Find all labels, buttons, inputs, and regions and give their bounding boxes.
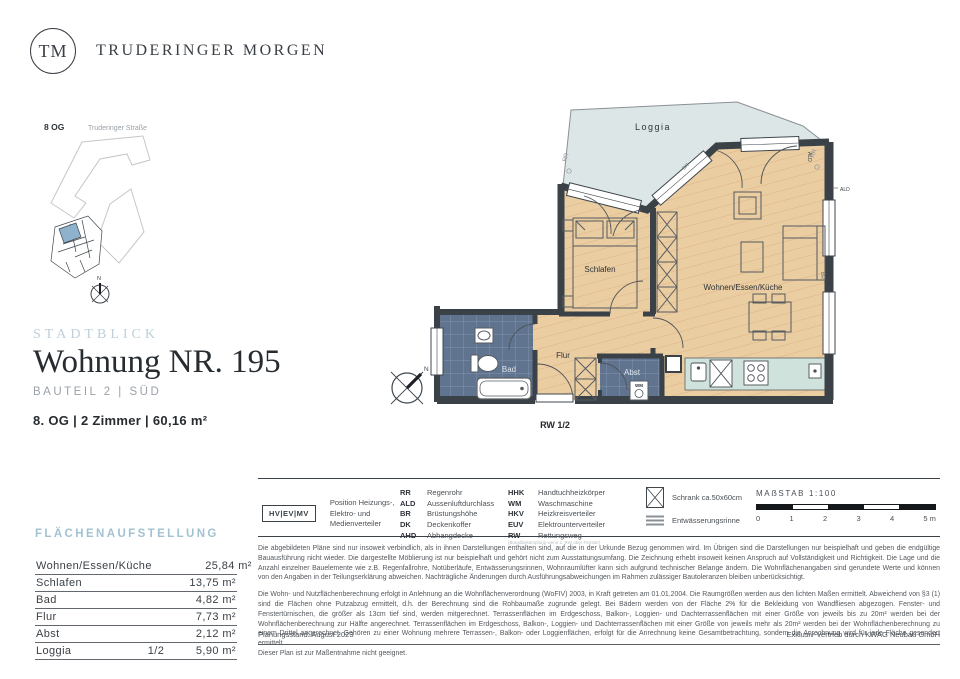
dishwasher-icon [710, 360, 732, 387]
scale-legend: MAẞSTAB 1:100 012345 m [756, 489, 936, 523]
table-row: Wohnen/Essen/Küche 25,84 m² [35, 558, 237, 575]
row-value: 13,75 m² [176, 577, 236, 589]
row-label: Flur [36, 611, 136, 623]
drainage-icon [646, 515, 664, 526]
brand-wordmark: TRUDERINGER MORGEN [96, 42, 327, 60]
toilet-icon [471, 355, 498, 372]
area-table-heading: FLÄCHENAUFSTELLUNG [35, 528, 237, 540]
page-footer: Planungsstand: August 2023 Exklusiv-Vert… [258, 630, 940, 645]
room-label-bad: Bad [502, 365, 516, 374]
room-label-flur: Flur [556, 351, 570, 360]
sink-icon [691, 363, 706, 381]
row-label: Wohnen/Essen/Küche [36, 560, 152, 572]
hv-box-icon: HV|EV|MV [262, 505, 316, 522]
disclaimer-note: Dieser Plan ist zur Maßentnahme nicht ge… [258, 649, 940, 659]
legend-entry: WMWaschmaschine [508, 499, 605, 510]
apartment-details: 8. OG | 2 Zimmer | 60,16 m² [33, 413, 281, 428]
distribution-credit: Exklusiv-Vertrieb durch KWAG Neubau GmbH [786, 630, 940, 639]
svg-text:WM: WM [635, 383, 643, 388]
row-label: Loggia [36, 645, 136, 657]
legend-entry: Entwässerungsrinne [646, 515, 742, 526]
brand-logo: TM TRUDERINGER MORGEN [30, 28, 327, 74]
row-label: Abst [36, 628, 136, 640]
site-map-street-label: Truderinger Straße [88, 125, 147, 132]
area-table: FLÄCHENAUFSTELLUNG Wohnen/Essen/Küche 25… [35, 528, 237, 660]
row-value: 7,73 m² [176, 611, 236, 623]
br-label: BR [819, 272, 825, 279]
row-value: 25,84 m² [192, 560, 252, 572]
svg-text:N: N [97, 276, 101, 282]
row-label: Schlafen [36, 577, 136, 589]
legend-entry: BRBrüstungshöhe [400, 509, 494, 520]
row-factor: 1/2 [136, 645, 176, 657]
legend-entry: EUVElektrounterverteiler [508, 520, 605, 531]
abbreviation-column-2: HHKHandtuchheizkörper WMWaschmaschine HK… [508, 488, 605, 545]
entrance-door-leaf [536, 394, 573, 402]
site-map-floor-label: 8 OG [44, 122, 65, 132]
cooktop-icon [744, 361, 768, 385]
hv-description: Position Heizungs-, Elektro- und Medienv… [330, 498, 408, 530]
compass-icon: N [391, 366, 429, 404]
room-label-wohnen: Wohnen/Essen/Küche [703, 283, 783, 292]
hv-legend: HV|EV|MV Position Heizungs-, Elektro- un… [262, 498, 408, 530]
disclaimer-paragraph: Die abgebildeten Pläne sind nur insoweit… [258, 544, 940, 583]
brand-monogram-icon: TM [30, 28, 76, 74]
bathtub-icon [477, 378, 531, 399]
legend-entry: Schrank ca.50x60cm [646, 487, 742, 508]
schrank-icon [646, 487, 664, 508]
symbol-label: Entwässerungsrinne [672, 516, 740, 525]
svg-text:N: N [424, 366, 429, 373]
table-row: Schlafen 13,75 m² [35, 575, 237, 592]
floor-plan-drawing: WM Loggia Schlafen Wohnen/Essen/Küche Fl… [385, 100, 870, 455]
scale-label: MAẞSTAB 1:100 [756, 489, 936, 498]
abbreviation-column-1: RRRegenrohr ALDAussenluftdurchlass BRBrü… [400, 488, 494, 541]
room-label-loggia: Loggia [635, 122, 671, 132]
planning-status: Planungsstand: August 2023 [258, 630, 354, 639]
room-label-schlafen: Schlafen [584, 265, 615, 274]
project-name: STADTBLICK [33, 327, 281, 343]
row-value: 2,12 m² [176, 628, 236, 640]
outlet-box [809, 364, 821, 378]
escape-route-label: RW 1/2 [540, 420, 570, 430]
legend-entry: ALDAussenluftdurchlass [400, 499, 494, 510]
shaft-box [666, 356, 681, 372]
table-row: Loggia 1/2 5,90 m² [35, 643, 237, 660]
row-value: 4,82 m² [176, 594, 236, 606]
scale-bar [756, 504, 936, 510]
ald-label: ALD [840, 187, 850, 193]
site-location-map: 8 OG Truderinger Straße N [30, 112, 230, 315]
unit-cluster [51, 216, 102, 278]
row-value: 5,90 m² [176, 645, 236, 657]
page-title: Wohnung NR. 195 [33, 344, 281, 381]
legend-entry: HHKHandtuchheizkörper [508, 488, 605, 499]
legend-entry: AHDAbhangdecke [400, 531, 494, 542]
symbol-label: Schrank ca.50x60cm [672, 493, 742, 502]
washing-machine-icon: WM [630, 381, 648, 400]
symbol-column: Schrank ca.50x60cm Entwässerungsrinne [646, 487, 742, 533]
table-row: Abst 2,12 m² [35, 626, 237, 643]
building-section-label: BAUTEIL 2 | SÜD [33, 386, 281, 398]
site-map-compass-icon: N [91, 276, 109, 303]
washbasin-icon [475, 328, 493, 343]
legend-entry: RRRegenrohr [400, 488, 494, 499]
plan-legend: HV|EV|MV Position Heizungs-, Elektro- un… [258, 478, 940, 537]
table-row: Flur 7,73 m² [35, 609, 237, 626]
room-label-abst: Abst [624, 368, 641, 377]
table-row: Bad 4,82 m² [35, 592, 237, 609]
title-block: STADTBLICK Wohnung NR. 195 BAUTEIL 2 | S… [33, 327, 281, 428]
ald-label: ALD [806, 152, 812, 162]
row-label: Bad [36, 594, 136, 606]
legend-entry: HKVHeizkreisverteiler [508, 509, 605, 520]
scale-ticks: 012345 m [756, 514, 936, 523]
floor-plan-document-page: { "brand": { "initials": "TM", "name": "… [0, 0, 960, 679]
legend-entry: DKDeckenkoffer [400, 520, 494, 531]
